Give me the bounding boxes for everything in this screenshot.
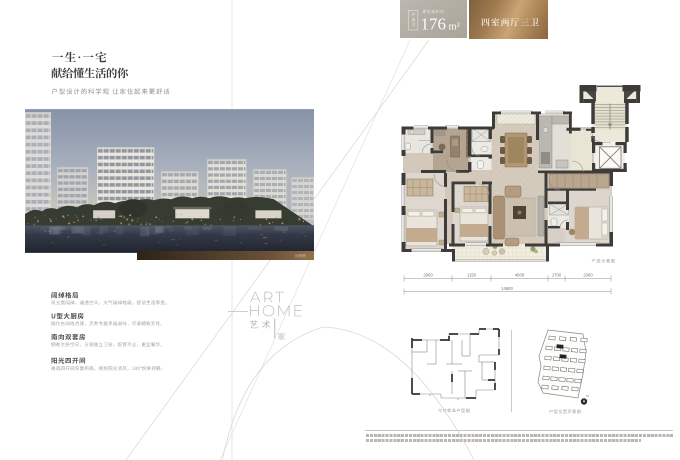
svg-text:1700: 1700	[552, 273, 562, 278]
svg-text:2300: 2300	[583, 273, 593, 278]
svg-text:N: N	[587, 394, 589, 398]
svg-text:1150: 1150	[467, 273, 477, 278]
svg-text:14600: 14600	[501, 286, 513, 291]
svg-text:m²: m²	[449, 22, 460, 33]
svg-text:4600: 4600	[515, 273, 525, 278]
svg-text:2900: 2900	[423, 273, 433, 278]
svg-text:176: 176	[421, 15, 447, 34]
